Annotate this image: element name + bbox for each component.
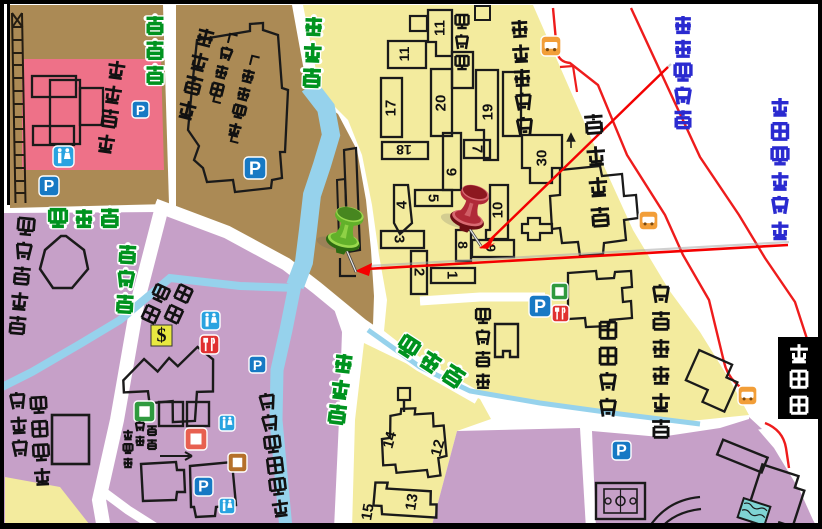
svg-text:5: 5	[425, 194, 442, 202]
svg-text:4: 4	[394, 200, 411, 209]
svg-text:P: P	[198, 479, 209, 496]
svg-text:11: 11	[432, 20, 449, 36]
svg-text:19: 19	[480, 104, 497, 121]
svg-text:P: P	[44, 178, 55, 195]
svg-text:30: 30	[534, 150, 551, 167]
svg-text:P: P	[253, 357, 262, 373]
svg-text:18: 18	[396, 142, 412, 158]
svg-text:P: P	[616, 443, 627, 460]
svg-text:P: P	[249, 159, 261, 179]
svg-text:10: 10	[490, 202, 507, 219]
svg-text:8: 8	[455, 241, 471, 249]
svg-text:P: P	[136, 102, 145, 118]
svg-text:20: 20	[433, 95, 450, 112]
svg-text:2: 2	[411, 268, 428, 276]
svg-text:6: 6	[444, 168, 461, 176]
svg-text:3: 3	[391, 235, 408, 243]
svg-text:17: 17	[383, 100, 400, 117]
svg-text:$: $	[157, 325, 167, 347]
svg-text:1: 1	[444, 271, 461, 279]
svg-text:7: 7	[469, 145, 486, 153]
svg-text:11: 11	[396, 46, 412, 61]
svg-text:13: 13	[402, 492, 422, 511]
svg-text:15: 15	[358, 502, 378, 521]
svg-text:P: P	[534, 297, 546, 317]
